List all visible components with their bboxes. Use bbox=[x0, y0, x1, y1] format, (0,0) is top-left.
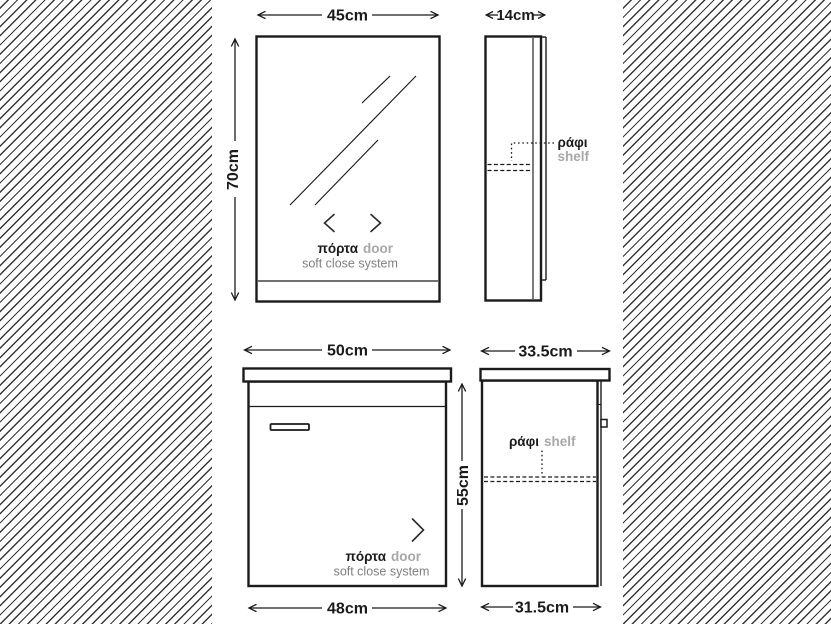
vanity-front-height-dimension: 55cm bbox=[455, 384, 472, 586]
mirror-front-width-dimension: 45cm bbox=[258, 7, 438, 24]
vanity-top-width-value: 50cm bbox=[327, 342, 368, 359]
vanity-side-body-outline bbox=[482, 381, 598, 587]
vanity-countertop-outline bbox=[244, 369, 452, 382]
vanity-shelf-label-greek: ράφι bbox=[509, 434, 539, 449]
vanity-side-bottom-depth-dimension: 31.5cm bbox=[482, 599, 601, 616]
mirror-side-depth-dimension: 14cm bbox=[486, 7, 545, 24]
vanity-top-depth-value: 33.5cm bbox=[518, 343, 572, 360]
mirror-front-view: πόρτα door soft close system bbox=[257, 37, 440, 302]
vanity-door-label-english: door bbox=[391, 549, 422, 564]
mirror-door-label-english: door bbox=[363, 241, 394, 256]
vanity-height-value: 55cm bbox=[455, 465, 472, 506]
vanity-side-view: ράφι shelf bbox=[481, 369, 610, 586]
vanity-door-label-greek: πόρτα bbox=[345, 549, 386, 564]
furniture-dimension-sheet: πόρτα door soft close system 45cm 70cm bbox=[0, 0, 831, 624]
mirror-side-view: ράφι shelf bbox=[486, 37, 590, 301]
vanity-side-handle bbox=[601, 420, 607, 428]
vanity-side-top-depth-dimension: 33.5cm bbox=[482, 343, 610, 360]
vanity-bottom-width-value: 48cm bbox=[327, 600, 368, 617]
mirror-shelf-label-greek: ράφι bbox=[558, 135, 588, 150]
mirror-soft-close-note: soft close system bbox=[302, 257, 398, 271]
vanity-soft-close-note: soft close system bbox=[334, 565, 430, 579]
vanity-bottom-depth-value: 31.5cm bbox=[515, 599, 569, 616]
vanity-front-top-width-dimension: 50cm bbox=[245, 342, 451, 359]
vanity-side-countertop-outline bbox=[481, 369, 610, 381]
vanity-door-handle bbox=[271, 424, 310, 430]
mirror-shelf-label-english: shelf bbox=[558, 149, 590, 164]
vanity-shelf-label-english: shelf bbox=[544, 434, 576, 449]
vanity-front-view: πόρτα door soft close system bbox=[244, 369, 452, 587]
mirror-door-label-greek: πόρτα bbox=[317, 241, 358, 256]
dimension-drawing: πόρτα door soft close system 45cm 70cm bbox=[0, 0, 831, 624]
mirror-width-value: 45cm bbox=[327, 7, 368, 24]
vanity-front-bottom-width-dimension: 48cm bbox=[249, 600, 446, 617]
mirror-height-value: 70cm bbox=[225, 149, 242, 190]
mirror-front-height-dimension: 70cm bbox=[225, 39, 242, 300]
mirror-depth-value: 14cm bbox=[496, 7, 534, 24]
